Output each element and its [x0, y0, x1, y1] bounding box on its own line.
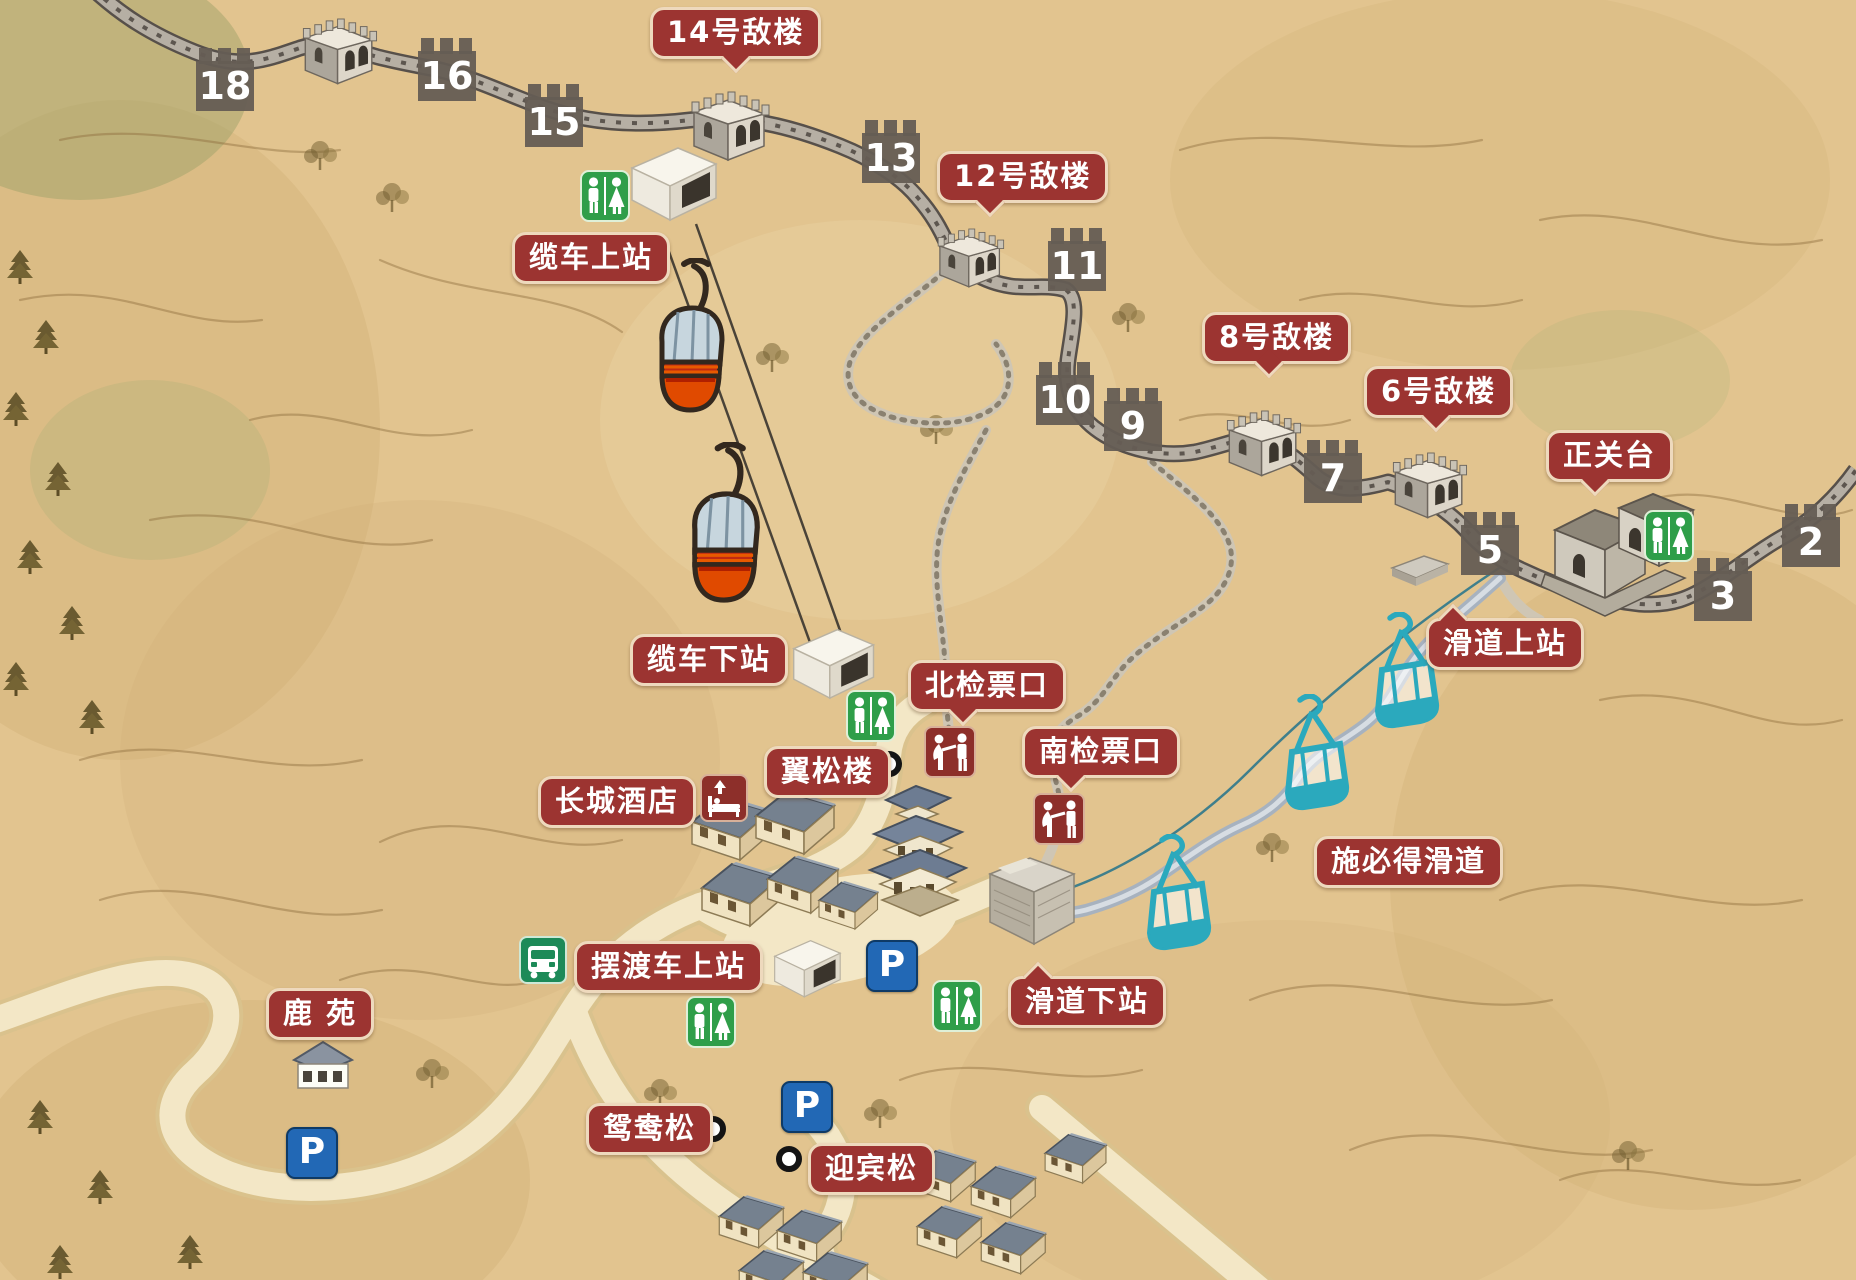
tower-number: 2 [1782, 517, 1840, 567]
shuttle-bus-station [770, 936, 845, 1006]
wall-tower-badge-3: 3 [1694, 558, 1752, 621]
cable-car-gondola [672, 442, 776, 625]
village-building [816, 878, 881, 937]
poi-label-cable-lower: 缆车下站 [630, 634, 788, 686]
village-building [914, 1202, 985, 1266]
toilet-icon [932, 980, 982, 1036]
village-building [1042, 1130, 1109, 1191]
poi-dot-yingbin-pine [776, 1146, 802, 1172]
wall-tower-badge-11: 11 [1048, 228, 1106, 291]
village-building [800, 1248, 871, 1280]
wall-tower-badge-15: 15 [525, 84, 583, 147]
wall-tower-badge-16: 16 [418, 38, 476, 101]
poi-label-yingbin-pine: 迎宾松 [808, 1143, 935, 1195]
poi-label-greatwall-hotel: 长城酒店 [538, 776, 696, 828]
chairlift-car [1134, 834, 1222, 956]
tower-number: 15 [525, 97, 583, 147]
toilet-icon [686, 996, 736, 1052]
parking-icon: P [781, 1081, 833, 1133]
tower-number: 3 [1694, 571, 1752, 621]
poi-label-south-ticket-gate: 南检票口 [1022, 726, 1180, 778]
poi-label-tower-14: 14号敌楼 [650, 7, 821, 59]
cable-upper-station [626, 142, 722, 232]
village-building [736, 1246, 807, 1280]
tower-number: 16 [418, 51, 476, 101]
slide-upper-platform [1388, 554, 1452, 592]
poi-label-yisonglou: 翼松楼 [764, 746, 891, 798]
tower-6-building [1382, 434, 1473, 529]
toilet-icon [1644, 510, 1694, 566]
poi-label-tower-8: 8号敌楼 [1202, 312, 1351, 364]
toilet-icon [580, 170, 630, 226]
poi-label-north-ticket-gate: 北检票口 [908, 660, 1066, 712]
tower-number: 13 [862, 133, 920, 183]
poi-label-yuanyang-pine: 鸳鸯松 [586, 1103, 713, 1155]
tower-12-building [928, 212, 1010, 297]
deer-garden-house [290, 1038, 356, 1098]
parking-letter: P [879, 944, 905, 985]
poi-label-deer-garden: 鹿 苑 [266, 988, 374, 1040]
village-building [978, 1218, 1049, 1280]
shuttle-bus-icon [519, 936, 567, 988]
poi-label-cable-upper: 缆车上站 [512, 232, 670, 284]
hotel-icon [700, 774, 748, 826]
parking-icon: P [286, 1127, 338, 1179]
poi-label-tower-12: 12号敌楼 [937, 151, 1108, 203]
parking-letter: P [794, 1085, 820, 1126]
wall-tower-badge-13: 13 [862, 120, 920, 183]
poi-label-slide-upper: 滑道上站 [1426, 618, 1584, 670]
wall-tower-badge-5: 5 [1461, 512, 1519, 575]
cable-car-gondola [640, 258, 740, 434]
slide-lower-station [978, 856, 1082, 956]
chairlift-car [1272, 694, 1360, 816]
wall-tower-badge-10: 10 [1036, 362, 1094, 425]
poi-label-tower-6: 6号敌楼 [1364, 366, 1513, 418]
tower-17-building [292, 0, 383, 95]
ticket-gate-icon [924, 726, 976, 782]
ticket-gate-icon [1033, 793, 1085, 849]
tower-number: 10 [1036, 375, 1094, 425]
wall-tower-badge-2: 2 [1782, 504, 1840, 567]
poi-label-shibide-slide: 施必得滑道 [1314, 836, 1503, 888]
toilet-icon [846, 690, 896, 746]
parking-icon: P [866, 940, 918, 992]
scenic-area-map: 1816151311109753214号敌楼12号敌楼8号敌楼6号敌楼正关台缆车… [0, 0, 1856, 1280]
marker-layer: 1816151311109753214号敌楼12号敌楼8号敌楼6号敌楼正关台缆车… [0, 0, 1856, 1280]
poi-label-zhengguantai: 正关台 [1546, 430, 1673, 482]
tower-number: 11 [1048, 241, 1106, 291]
tower-number: 7 [1304, 453, 1362, 503]
tower-number: 5 [1461, 525, 1519, 575]
wall-tower-badge-18: 18 [196, 48, 254, 111]
wall-tower-badge-9: 9 [1104, 388, 1162, 451]
tower-number: 9 [1104, 401, 1162, 451]
poi-label-shuttle-upper: 摆渡车上站 [574, 941, 763, 993]
tower-number: 18 [196, 61, 254, 111]
wall-tower-badge-7: 7 [1304, 440, 1362, 503]
poi-label-slide-lower: 滑道下站 [1008, 976, 1166, 1028]
parking-letter: P [299, 1131, 325, 1172]
tower-8-building [1216, 392, 1307, 487]
